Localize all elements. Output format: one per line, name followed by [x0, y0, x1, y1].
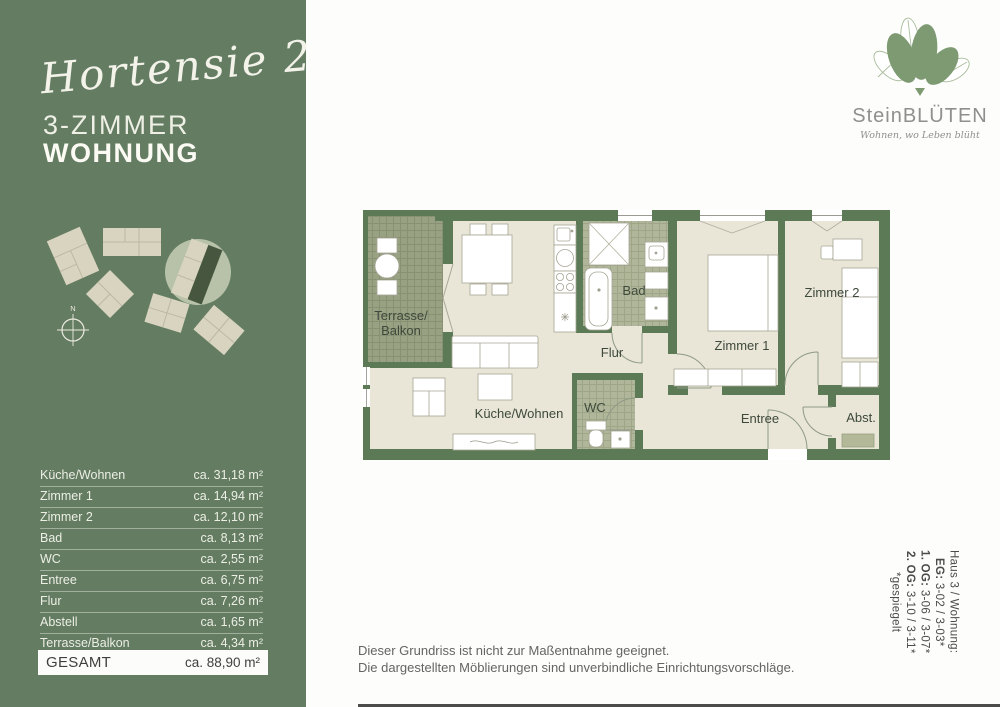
label-entree: Entree [741, 411, 779, 426]
room-label: Zimmer 1 [40, 489, 93, 503]
disclaimer-line2: Die dargestellten Möblierungen sind unve… [358, 659, 794, 676]
label-kueche-wohnen: Küche/Wohnen [475, 406, 564, 421]
table-row: Zimmer 2ca. 12,10 m² [40, 508, 263, 529]
coffee-table [478, 374, 512, 400]
room-area: ca. 6,75 m² [200, 573, 263, 587]
highlighted-building [165, 238, 231, 305]
bed-zimmer1 [708, 255, 778, 331]
label-wc: WC [584, 400, 606, 415]
kitchen-counter [554, 225, 576, 332]
room-label: Abstell [40, 615, 78, 629]
page: { "sidebar": { "title_script": "Hortensi… [0, 0, 1000, 707]
room-area: ca. 1,65 m² [200, 615, 263, 629]
label-zimmer1: Zimmer 1 [715, 338, 770, 353]
disclaimer-line1: Dieser Grundriss ist nicht zur Maßentnah… [358, 642, 794, 659]
room-label: Flur [40, 594, 62, 608]
table-row: Entreeca. 6,75 m² [40, 571, 263, 592]
shower [589, 223, 629, 265]
room-area: ca. 4,34 m² [200, 636, 263, 650]
room-area: ca. 7,26 m² [200, 594, 263, 608]
unit-info-eg: EG: 3-02 / 3-03* [933, 536, 945, 668]
label-balkon: Balkon [381, 323, 421, 338]
label-zimmer2: Zimmer 2 [805, 285, 860, 300]
wardrobe-zimmer2 [842, 362, 878, 387]
wc-washbasin [611, 431, 630, 448]
label-flur: Flur [601, 345, 624, 360]
bath-washbasins [645, 242, 668, 320]
room-label: Küche/Wohnen [40, 468, 125, 482]
disclaimer: Dieser Grundriss ist nicht zur Maßentnah… [358, 642, 794, 676]
armchair-shelf [413, 378, 445, 416]
brand-tagline: Wohnen, wo Leben blüht [845, 130, 995, 141]
room-label: Terrasse/Balkon [40, 636, 130, 650]
storage-shelf [842, 434, 874, 447]
apartment-subtitle-line1: 3-ZIMMER [43, 110, 190, 141]
room-area: ca. 2,55 m² [200, 552, 263, 566]
label-terrasse: Terrasse/ [374, 308, 428, 323]
apartment-subtitle-line2: WOHNUNG [43, 138, 199, 169]
table-row: Flurca. 7,26 m² [40, 592, 263, 613]
room-label: Zimmer 2 [40, 510, 93, 524]
terrace-furniture [375, 238, 399, 295]
room-area: ca. 12,10 m² [194, 510, 263, 524]
floor-plan: Terrasse/ Balkon Küche/Wohnen Bad Flur W… [358, 202, 898, 465]
total-area: ca. 88,90 m² [185, 655, 260, 670]
logo-leaves-icon [845, 14, 995, 98]
sidebar: Hortensie 2 3-ZIMMER WOHNUNG [0, 0, 306, 707]
room-label: Entree [40, 573, 77, 587]
unit-info-haus: Haus 3 / Wohnung: [948, 536, 960, 668]
unit-info-mirror: *gespiegelt [890, 536, 902, 668]
table-row: Abstellca. 1,65 m² [40, 613, 263, 634]
compass-label: N [70, 304, 75, 313]
bathtub [585, 268, 612, 330]
table-row: Küche/Wohnenca. 31,18 m² [40, 466, 263, 487]
total-row: GESAMT ca. 88,90 m² [38, 650, 268, 675]
tv-board [453, 434, 535, 450]
label-bad: Bad [622, 283, 645, 298]
unit-info-og1: 1. OG: 3-06 / 3-07* [919, 536, 931, 668]
wardrobe-zimmer1 [674, 369, 776, 386]
unit-info: Haus 3 / Wohnung: EG: 3-02 / 3-03* 1. OG… [852, 536, 962, 668]
toilet [586, 421, 606, 447]
bed-zimmer2 [842, 268, 878, 358]
total-label: GESAMT [46, 654, 111, 671]
room-label: Bad [40, 531, 62, 545]
room-area: ca. 31,18 m² [194, 468, 263, 482]
table-row: Zimmer 1ca. 14,94 m² [40, 487, 263, 508]
brand-logo: SteinBLÜTEN Wohnen, wo Leben blüht [845, 14, 995, 141]
apartment-title: Hortensie 2 [38, 34, 281, 104]
sofa [452, 336, 538, 368]
brand-name: SteinBLÜTEN [845, 105, 995, 128]
table-row: Badca. 8,13 m² [40, 529, 263, 550]
table-row: WCca. 2,55 m² [40, 550, 263, 571]
area-table: Küche/Wohnenca. 31,18 m² Zimmer 1ca. 14,… [40, 466, 263, 655]
room-label: WC [40, 552, 61, 566]
site-plan: N [28, 210, 280, 367]
label-abstell: Abst. [846, 410, 876, 425]
room-area: ca. 14,94 m² [194, 489, 263, 503]
room-area: ca. 8,13 m² [200, 531, 263, 545]
unit-info-og2: 2. OG: 3-10 / 3-11* [904, 536, 916, 668]
compass-icon: N [57, 304, 89, 346]
